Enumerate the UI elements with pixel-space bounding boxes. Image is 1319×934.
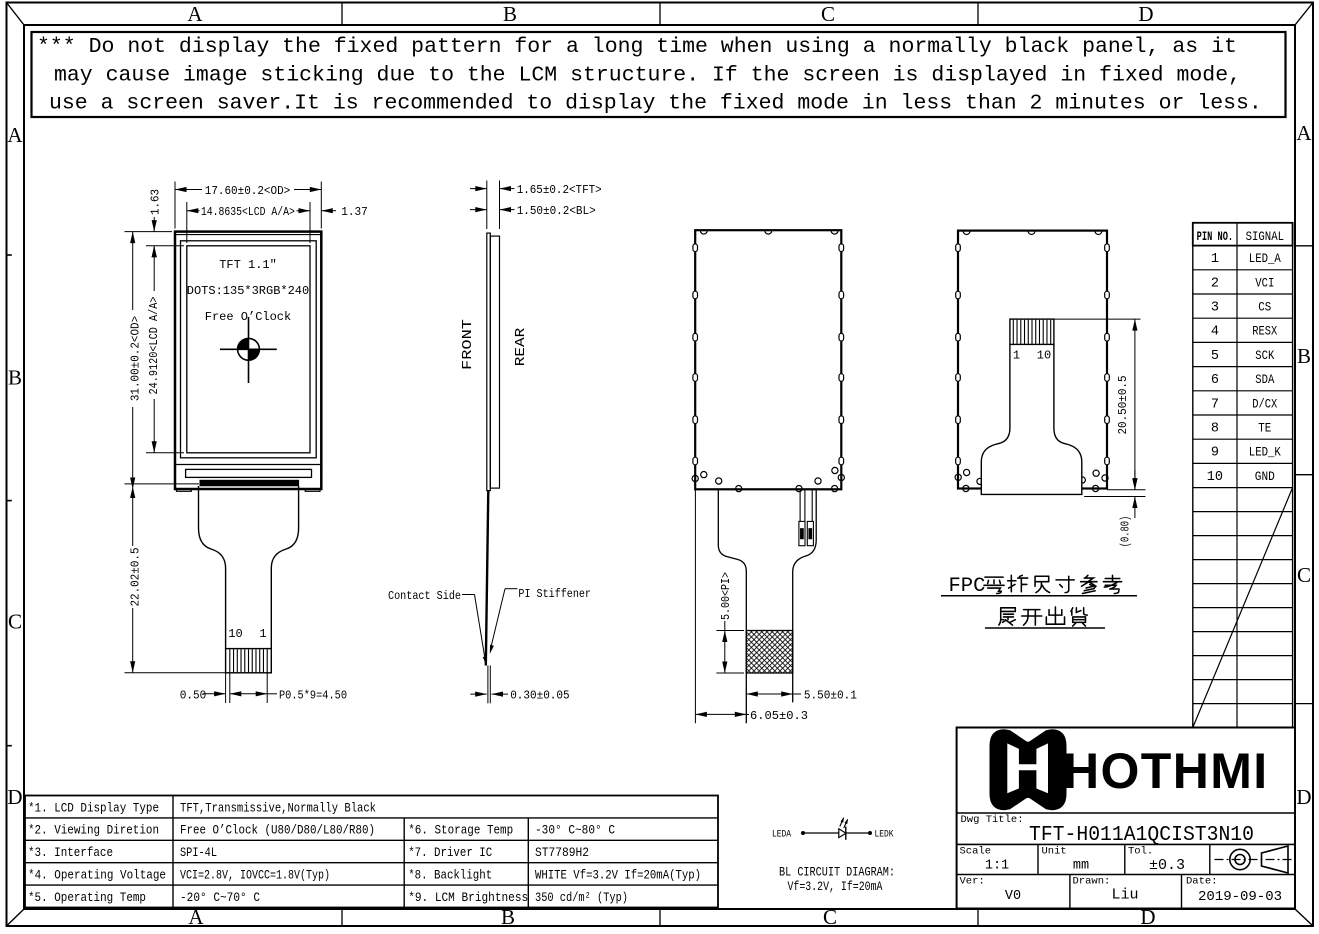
svg-text:*9. LCM Brightness: *9. LCM Brightness — [408, 891, 528, 905]
svg-text:-30° C~80° C: -30° C~80° C — [535, 824, 615, 838]
svg-text:may cause image sticking due t: may cause image sticking due to the LCM … — [54, 64, 1241, 88]
svg-text:B: B — [8, 366, 22, 390]
svg-text:20.50±0.5: 20.50±0.5 — [1116, 376, 1130, 435]
svg-text:VCI=2.8V, IOVCC=1.8V(Typ): VCI=2.8V, IOVCC=1.8V(Typ) — [180, 869, 330, 883]
svg-text:Vf=3.2V, If=20mA: Vf=3.2V, If=20mA — [788, 879, 883, 894]
svg-text:5.50±0.1: 5.50±0.1 — [804, 689, 857, 703]
svg-text:(0.80): (0.80) — [1119, 516, 1133, 548]
svg-text:mm: mm — [1073, 859, 1089, 874]
svg-text:0.50: 0.50 — [180, 688, 207, 702]
svg-text:D/CX: D/CX — [1252, 397, 1277, 411]
svg-text:A: A — [187, 2, 203, 26]
svg-text:C: C — [1297, 563, 1311, 587]
svg-text:31.00±0.2<OD>: 31.00±0.2<OD> — [129, 316, 143, 401]
svg-text:TFT 1.1″: TFT 1.1″ — [219, 258, 277, 272]
svg-text:SCK: SCK — [1255, 349, 1274, 363]
svg-text:Free O’Clock (U80/D80/L80/R80): Free O’Clock (U80/D80/L80/R80) — [180, 824, 375, 838]
svg-text:350 cd/m² (Typ): 350 cd/m² (Typ) — [535, 891, 628, 905]
svg-text:REAR: REAR — [514, 328, 529, 367]
svg-text:P0.5*9=4.50: P0.5*9=4.50 — [279, 688, 347, 702]
svg-text:Drawn:: Drawn: — [1073, 876, 1111, 888]
svg-text:SPI-4L: SPI-4L — [180, 846, 217, 860]
svg-text:VCI: VCI — [1255, 276, 1274, 290]
svg-text:-20° C~70° C: -20° C~70° C — [180, 891, 260, 905]
svg-text:5: 5 — [1211, 349, 1219, 364]
svg-text:TFT,Transmissive,Normally Blac: TFT,Transmissive,Normally Black — [180, 801, 376, 815]
svg-text:10: 10 — [228, 627, 242, 641]
svg-text:1: 1 — [1013, 349, 1020, 363]
svg-text:3: 3 — [1211, 301, 1219, 316]
svg-text:A: A — [1296, 121, 1312, 145]
svg-text:ST7789H2: ST7789H2 — [535, 846, 589, 860]
svg-text:A: A — [188, 905, 204, 929]
svg-text:8: 8 — [1211, 422, 1219, 437]
svg-text:6: 6 — [1211, 373, 1219, 388]
svg-text:TFT-H011A1QCIST3N10: TFT-H011A1QCIST3N10 — [1029, 824, 1254, 847]
svg-text:C: C — [8, 610, 22, 634]
svg-text:24.9120<LCD A/A>: 24.9120<LCD A/A> — [147, 297, 161, 395]
svg-text:B: B — [1297, 344, 1311, 368]
svg-text:PI Stiffener: PI Stiffener — [518, 587, 591, 601]
svg-text:1.65±0.2<TFT>: 1.65±0.2<TFT> — [517, 183, 602, 197]
svg-text:1: 1 — [1211, 252, 1219, 267]
svg-text:1.50±0.2<BL>: 1.50±0.2<BL> — [517, 204, 596, 218]
svg-text:SDA: SDA — [1255, 373, 1274, 387]
svg-text:LED_K: LED_K — [1249, 446, 1281, 460]
svg-text:±0.3: ±0.3 — [1149, 857, 1185, 874]
svg-text:10: 10 — [1037, 349, 1051, 363]
svg-text:1.63: 1.63 — [149, 189, 163, 215]
svg-text:*5. Operating Temp: *5. Operating Temp — [28, 891, 146, 905]
svg-text:22.02±0.5: 22.02±0.5 — [129, 548, 143, 607]
svg-text:Contact Side: Contact Side — [388, 589, 461, 603]
svg-text:HOTHMI: HOTHMI — [1063, 743, 1269, 799]
svg-text:BL CIRCUIT DIAGRAM:: BL CIRCUIT DIAGRAM: — [779, 865, 895, 880]
svg-text:6.05±0.3: 6.05±0.3 — [750, 709, 808, 723]
svg-text:SIGNAL: SIGNAL — [1246, 230, 1284, 244]
svg-text:WHITE Vf=3.2V If=20mA(Typ): WHITE Vf=3.2V If=20mA(Typ) — [535, 869, 701, 883]
svg-text:1:1: 1:1 — [985, 859, 1009, 874]
svg-text:*4. Operating Voltage: *4. Operating Voltage — [28, 869, 166, 883]
svg-text:CS: CS — [1258, 301, 1271, 315]
svg-text:A: A — [7, 123, 23, 147]
svg-text:1: 1 — [259, 627, 266, 641]
svg-text:*1. LCD Display Type: *1. LCD Display Type — [28, 801, 159, 815]
svg-text:7: 7 — [1211, 397, 1219, 412]
svg-text:9: 9 — [1211, 446, 1219, 461]
svg-text:*** Do not display the fixed p: *** Do not display the fixed pattern for… — [37, 35, 1237, 59]
svg-text:D: D — [1138, 2, 1153, 26]
svg-text:2: 2 — [1211, 276, 1219, 291]
svg-text:D: D — [1296, 785, 1311, 809]
svg-text:1.37: 1.37 — [341, 205, 368, 219]
svg-text:LED_A: LED_A — [1249, 252, 1281, 266]
svg-text:4: 4 — [1211, 325, 1219, 340]
svg-text:B: B — [501, 905, 515, 929]
svg-text:use a screen saver.It is recom: use a screen saver.It is recommended to … — [49, 92, 1262, 116]
svg-text:2019-09-03: 2019-09-03 — [1198, 889, 1282, 905]
svg-text:C: C — [821, 2, 835, 26]
svg-text:0.30±0.05: 0.30±0.05 — [510, 689, 569, 703]
svg-text:V0: V0 — [1005, 889, 1021, 904]
svg-text:FPC: FPC — [949, 575, 986, 598]
svg-text:RESX: RESX — [1252, 325, 1277, 339]
svg-text:*3. Interface: *3. Interface — [28, 846, 113, 860]
svg-text:GND: GND — [1255, 470, 1275, 484]
svg-text:5.00<PI>: 5.00<PI> — [719, 572, 733, 620]
svg-text:D: D — [7, 785, 22, 809]
svg-text:*2. Viewing Diretion: *2. Viewing Diretion — [28, 824, 159, 838]
svg-text:Dwg Title:: Dwg Title: — [961, 814, 1024, 826]
svg-text:PIN NO.: PIN NO. — [1197, 230, 1234, 244]
svg-text:B: B — [503, 2, 517, 26]
svg-text:*7. Driver IC: *7. Driver IC — [408, 846, 492, 860]
svg-text:LEDA: LEDA — [772, 830, 791, 841]
svg-text:C: C — [823, 905, 837, 929]
svg-text:Tol.: Tol. — [1128, 846, 1153, 858]
svg-text:TE: TE — [1258, 422, 1271, 436]
svg-text:Ver:: Ver: — [960, 876, 985, 888]
svg-text:14.8635<LCD A/A>: 14.8635<LCD A/A> — [201, 205, 295, 219]
svg-text:*8. Backlight: *8. Backlight — [408, 869, 492, 883]
svg-text:FRONT: FRONT — [461, 319, 476, 370]
svg-text:Date:: Date: — [1186, 876, 1218, 888]
svg-text:Unit: Unit — [1042, 846, 1067, 858]
svg-text:LEDK: LEDK — [875, 830, 894, 841]
svg-text:Scale: Scale — [960, 846, 992, 858]
svg-text:*6. Storage Temp: *6. Storage Temp — [408, 824, 513, 838]
svg-text:Liu: Liu — [1111, 887, 1138, 904]
svg-text:17.60±0.2<OD>: 17.60±0.2<OD> — [205, 184, 291, 198]
svg-text:DOTS:135*3RGB*240: DOTS:135*3RGB*240 — [187, 284, 309, 298]
svg-text:10: 10 — [1207, 470, 1223, 485]
